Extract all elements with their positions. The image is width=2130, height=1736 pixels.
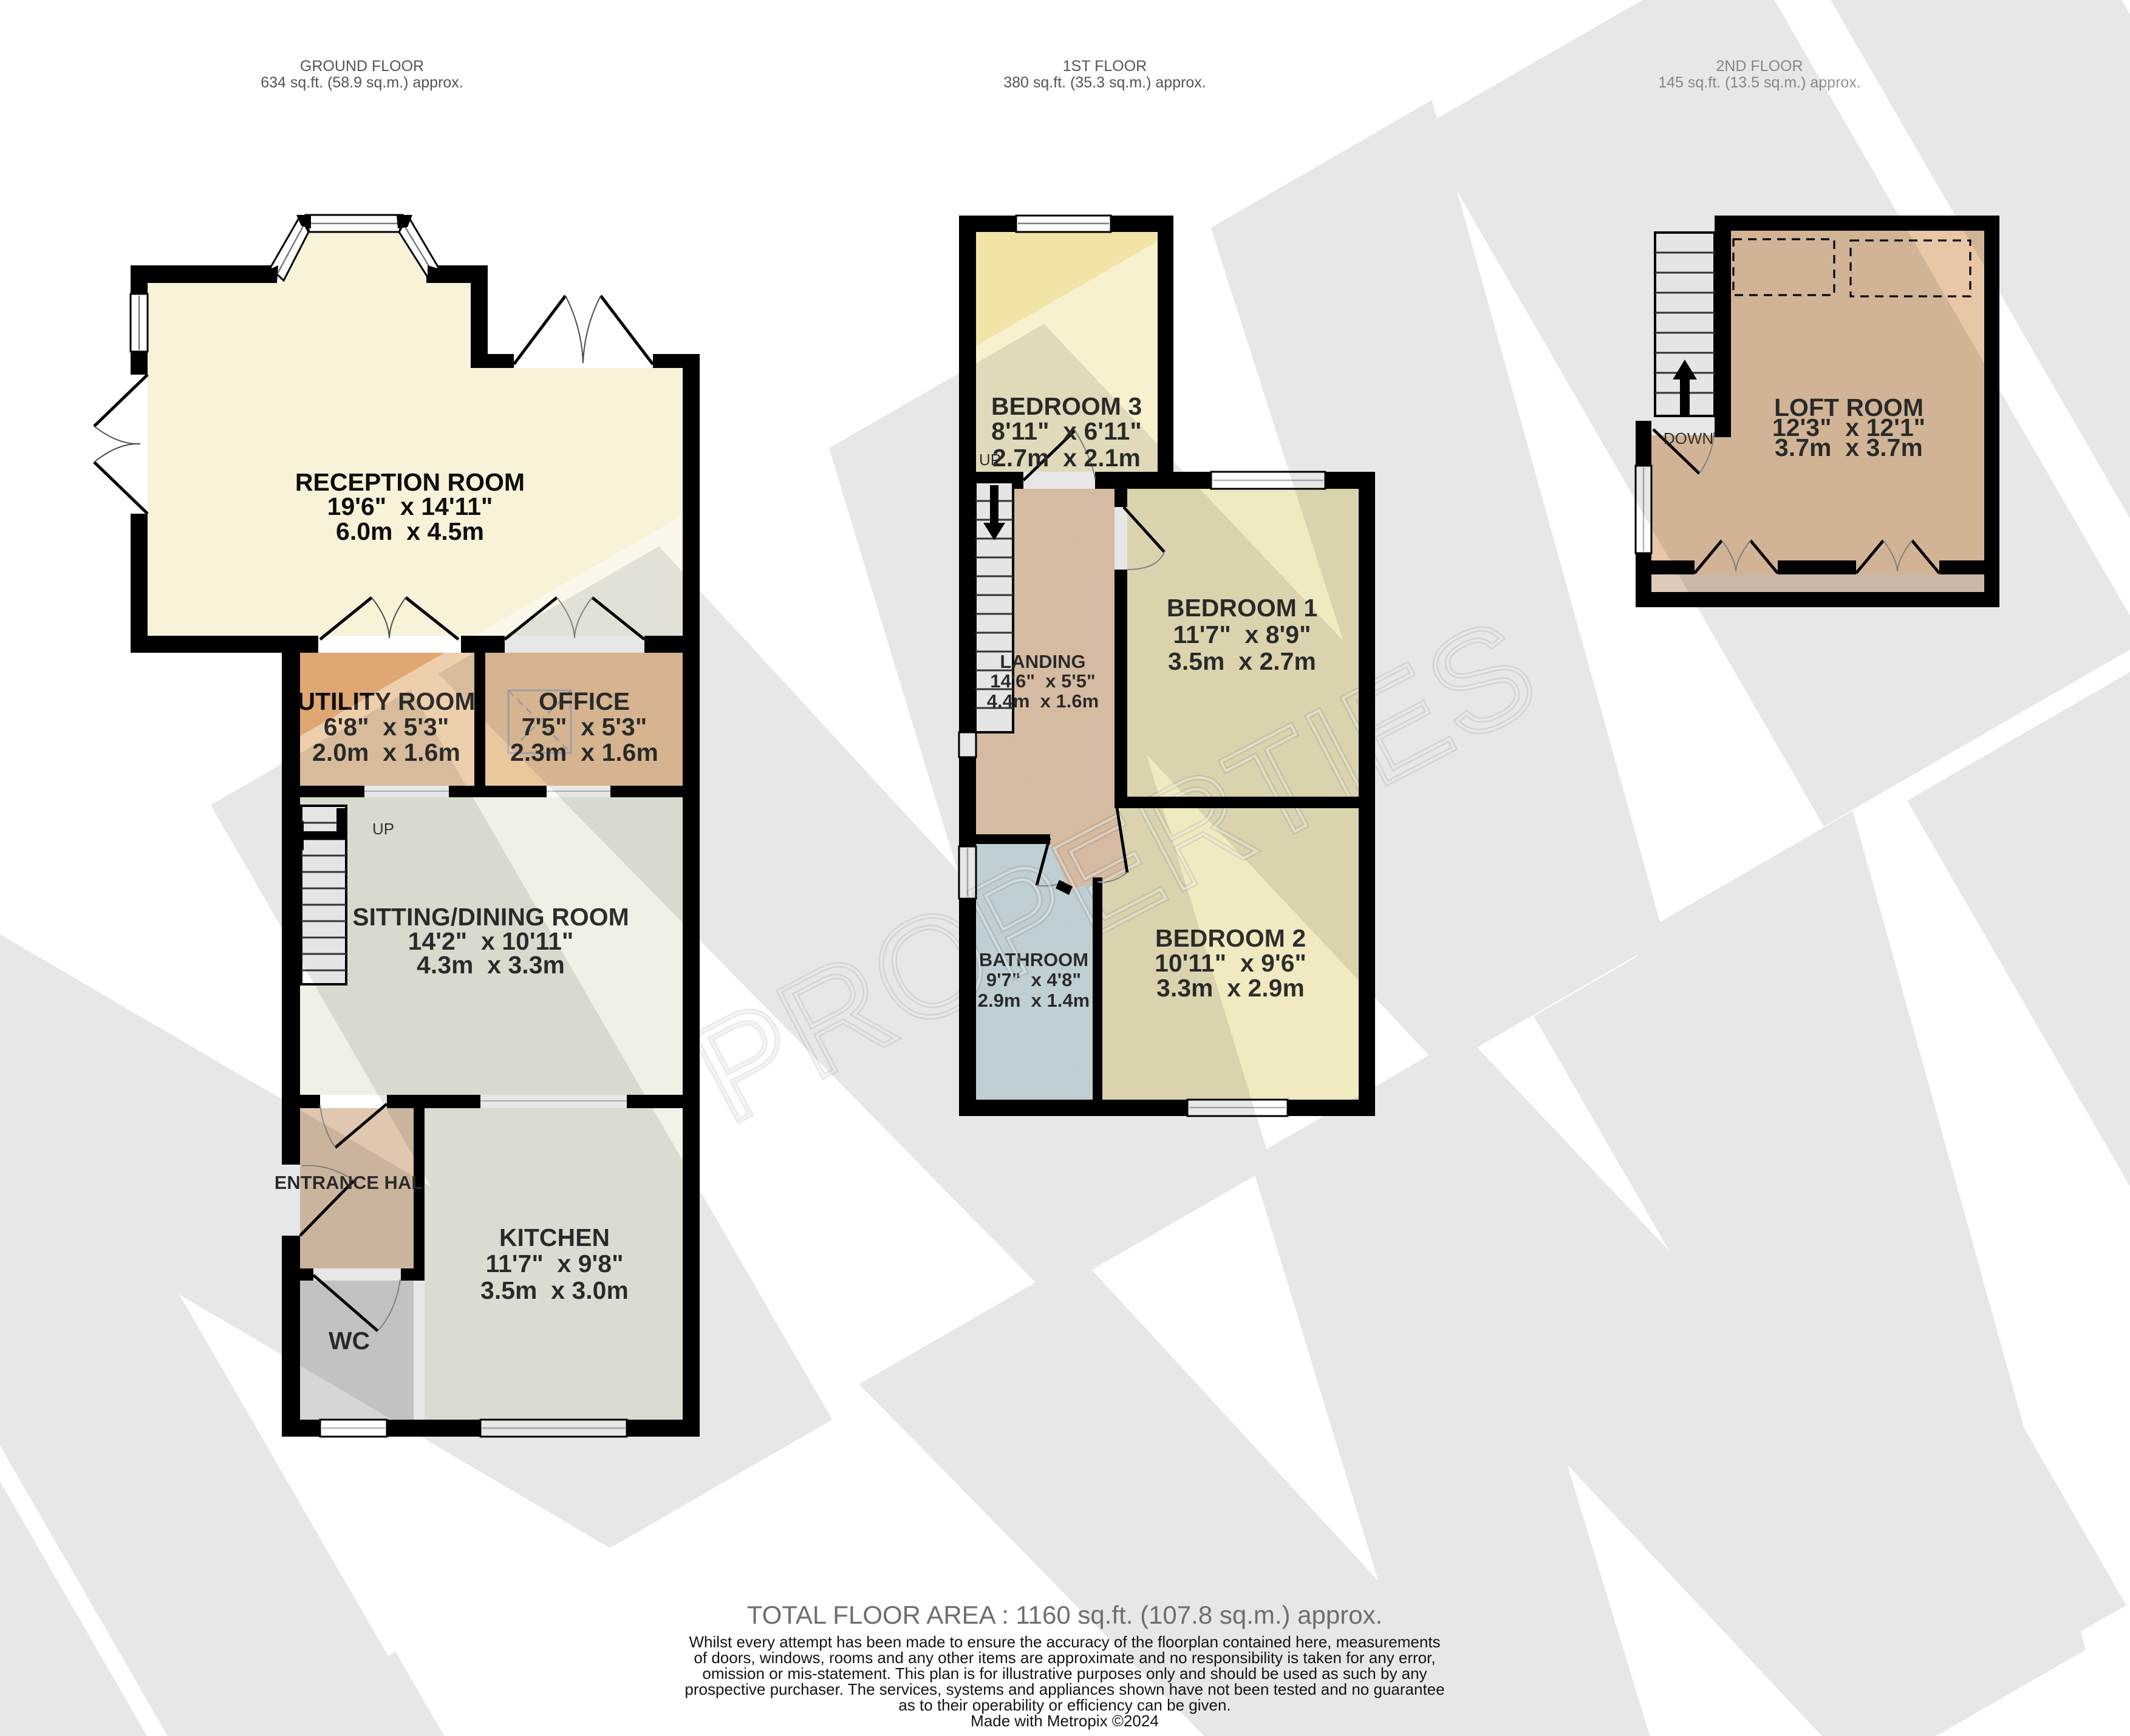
svg-text:TOTAL FLOOR AREA : 1160 sq.ft.: TOTAL FLOOR AREA : 1160 sq.ft. (107.8 sq… bbox=[747, 1601, 1383, 1629]
svg-text:Made with Metropix ©2024: Made with Metropix ©2024 bbox=[971, 1712, 1159, 1730]
svg-text:634 sq.ft. (58.9 sq.m.) approx: 634 sq.ft. (58.9 sq.m.) approx. bbox=[261, 74, 463, 91]
svg-text:GROUND FLOOR: GROUND FLOOR bbox=[300, 58, 424, 75]
